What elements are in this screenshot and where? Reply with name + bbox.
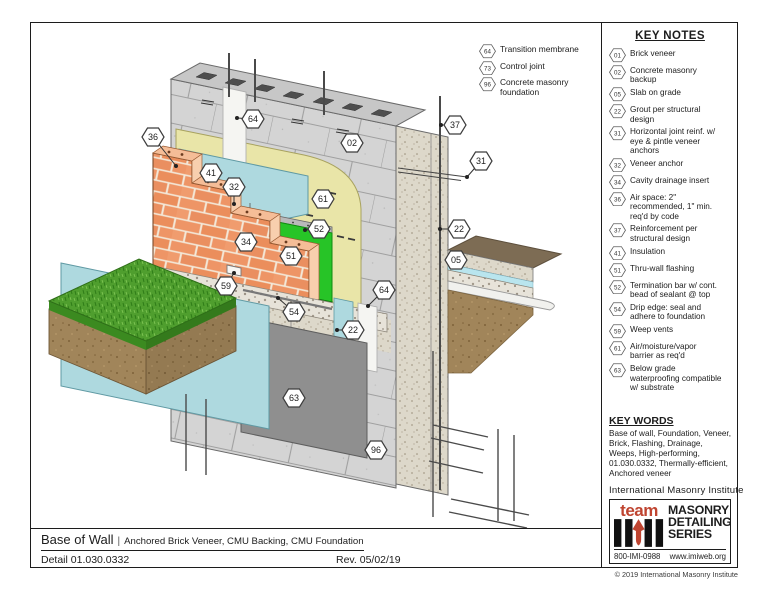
series-wordmark: MASONRY DETAILING SERIES (668, 504, 732, 540)
keynote-hexagon-icon: 36 (609, 192, 626, 207)
key-notes-panel: KEY NOTES 01 Brick veneer (601, 23, 737, 567)
key-note-label: Reinforcement per structural design (630, 224, 722, 243)
svg-text:51: 51 (286, 251, 296, 261)
svg-text:52: 52 (314, 224, 324, 234)
svg-text:63: 63 (289, 393, 299, 403)
svg-text:37: 37 (450, 120, 460, 130)
callout-63: 63 (283, 389, 305, 407)
legend-item: 64 Transition membrane (479, 45, 604, 59)
keynote-hexagon-icon: 32 (609, 158, 626, 173)
key-words-block: KEY WORDS Base of wall, Foundation, Vene… (609, 415, 731, 484)
legend-hexagon-icon: 73 (479, 61, 496, 76)
key-words-text: Base of wall, Foundation, Veneer, Brick,… (609, 429, 731, 478)
svg-text:37: 37 (614, 228, 621, 235)
phone-number: 800-IMI-0988 (614, 552, 660, 561)
key-note-label: Air space: 2" recommended, 1" min. req'd… (630, 193, 722, 221)
callout-51: 51 (280, 247, 302, 265)
keynote-hexagon-icon: 41 (609, 246, 626, 261)
team-wordmark: team (620, 503, 658, 518)
svg-text:34: 34 (614, 179, 621, 186)
svg-text:01: 01 (614, 52, 621, 59)
legend-hexagon-icon: 64 (479, 44, 496, 59)
key-note-item: 31 Horizontal joint reinf. w/ eye & pint… (609, 127, 731, 155)
svg-text:59: 59 (614, 328, 621, 335)
legend-item: 73 Control joint (479, 62, 604, 76)
key-note-label: Thru-wall flashing (630, 264, 694, 273)
key-notes-list: 01 Brick veneer 02 Concrete masonry back… (609, 49, 731, 396)
keynote-hexagon-icon: 01 (609, 48, 626, 63)
keynote-hexagon-icon: 34 (609, 175, 626, 190)
keynote-hexagon-icon: 05 (609, 87, 626, 102)
callout-96: 96 (365, 441, 387, 459)
svg-text:22: 22 (614, 109, 621, 116)
keynote-hexagon-icon: 63 (609, 363, 626, 378)
keynote-hexagon-icon: 52 (609, 280, 626, 295)
svg-text:05: 05 (451, 255, 461, 265)
keynote-hexagon-icon: 02 (609, 65, 626, 80)
key-note-item: 37 Reinforcement per structural design (609, 224, 731, 243)
svg-text:59: 59 (221, 281, 231, 291)
callout-31: 31 (465, 152, 492, 179)
callout-34: 34 (235, 233, 257, 251)
legend-hexagon-icon: 96 (479, 77, 496, 92)
svg-text:22: 22 (454, 224, 464, 234)
legend-item-label: Concrete masonry foundation (500, 78, 600, 97)
svg-text:64: 64 (484, 48, 491, 55)
key-note-item: 63 Below grade waterproofing compatible … (609, 364, 731, 392)
key-note-label: Horizontal joint reinf. w/ eye & pintle … (630, 127, 722, 155)
legend-item: 96 Concrete masonry foundation (479, 78, 604, 97)
callout-41: 41 (200, 164, 222, 182)
detail-number: Detail 01.030.0332 (41, 554, 129, 566)
key-note-item: 01 Brick veneer (609, 49, 731, 63)
svg-text:51: 51 (614, 267, 621, 274)
callout-37: 37 (439, 116, 466, 134)
svg-text:64: 64 (379, 285, 389, 295)
sheet-subtitle: Anchored Brick Veneer, CMU Backing, CMU … (124, 536, 363, 547)
svg-text:05: 05 (614, 92, 621, 99)
svg-text:36: 36 (614, 196, 621, 203)
title-separator: | (118, 536, 121, 547)
imi-logo-mark (614, 519, 664, 547)
callout-02: 02 (341, 134, 363, 152)
svg-text:31: 31 (614, 131, 621, 138)
svg-text:36: 36 (148, 132, 158, 142)
keynote-hexagon-icon: 22 (609, 104, 626, 119)
svg-text:63: 63 (614, 368, 621, 375)
key-note-label: Drip edge: seal and adhere to foundation (630, 303, 722, 322)
key-note-item: 51 Thru-wall flashing (609, 264, 731, 278)
svg-text:41: 41 (614, 250, 621, 257)
svg-text:31: 31 (476, 156, 486, 166)
svg-text:54: 54 (289, 307, 299, 317)
keynote-hexagon-icon: 31 (609, 126, 626, 141)
svg-text:41: 41 (206, 168, 216, 178)
key-note-label: Weep vents (630, 325, 673, 334)
key-note-item: 41 Insulation (609, 247, 731, 261)
svg-text:96: 96 (371, 445, 381, 455)
key-notes-heading: KEY NOTES (609, 30, 731, 42)
key-note-item: 32 Veneer anchor (609, 159, 731, 173)
drawing-frame: 36640237314132615222345105645954226396 6… (30, 22, 738, 568)
svg-text:32: 32 (229, 182, 239, 192)
svg-text:64: 64 (248, 114, 258, 124)
key-note-item: 05 Slab on grade (609, 88, 731, 102)
svg-text:61: 61 (318, 194, 328, 204)
callout-05: 05 (445, 251, 467, 269)
keynote-hexagon-icon: 37 (609, 223, 626, 238)
svg-text:54: 54 (614, 306, 621, 313)
keynote-hexagon-icon: 54 (609, 302, 626, 317)
revision-date: Rev. 05/02/19 (336, 554, 401, 566)
top-legend: 64 Transition membrane 73 Control joint (479, 45, 604, 100)
key-note-label: Slab on grade (630, 88, 681, 97)
svg-text:96: 96 (484, 81, 491, 88)
institute-name: International Masonry Institute (609, 485, 731, 496)
key-words-heading: KEY WORDS (609, 415, 731, 427)
key-note-item: 22 Grout per structural design (609, 105, 731, 124)
svg-text:02: 02 (347, 138, 357, 148)
key-note-item: 02 Concrete masonry backup (609, 66, 731, 85)
key-note-item: 36 Air space: 2" recommended, 1" min. re… (609, 193, 731, 221)
key-note-label: Cavity drainage insert (630, 176, 709, 185)
sheet: 36640237314132615222345105645954226396 6… (0, 0, 768, 594)
svg-text:52: 52 (614, 284, 621, 291)
key-note-item: 54 Drip edge: seal and adhere to foundat… (609, 303, 731, 322)
callout-61: 61 (312, 190, 334, 208)
svg-text:32: 32 (614, 162, 621, 169)
legend-item-label: Control joint (500, 62, 545, 72)
key-note-label: Veneer anchor (630, 159, 683, 168)
key-note-label: Air/moisture/vapor barrier as req'd (630, 342, 722, 361)
keynote-hexagon-icon: 59 (609, 324, 626, 339)
imi-logo-box: team MASONRY DETAILING SERIES (609, 499, 731, 564)
svg-text:22: 22 (348, 325, 358, 335)
key-note-item: 59 Weep vents (609, 325, 731, 339)
key-note-item: 52 Termination bar w/ cont. bead of seal… (609, 281, 731, 300)
svg-text:73: 73 (484, 65, 491, 72)
svg-text:61: 61 (614, 345, 621, 352)
svg-text:02: 02 (614, 69, 621, 76)
keynote-hexagon-icon: 61 (609, 341, 626, 356)
key-note-label: Below grade waterproofing compatible w/ … (630, 364, 722, 392)
keynote-hexagon-icon: 51 (609, 263, 626, 278)
key-note-label: Brick veneer (630, 49, 676, 58)
key-note-item: 61 Air/moisture/vapor barrier as req'd (609, 342, 731, 361)
key-note-label: Insulation (630, 247, 665, 256)
key-note-label: Termination bar w/ cont. bead of sealant… (630, 281, 722, 300)
key-note-item: 34 Cavity drainage insert (609, 176, 731, 190)
sheet-title: Base of Wall (41, 532, 114, 547)
svg-text:34: 34 (241, 237, 251, 247)
copyright-line: © 2019 International Masonry Institute (30, 570, 738, 579)
key-note-label: Grout per structural design (630, 105, 722, 124)
legend-item-label: Transition membrane (500, 45, 579, 55)
title-block: Base of Wall|Anchored Brick Veneer, CMU … (31, 528, 602, 569)
website-url: www.imiweb.org (670, 552, 726, 561)
key-note-label: Concrete masonry backup (630, 66, 722, 85)
